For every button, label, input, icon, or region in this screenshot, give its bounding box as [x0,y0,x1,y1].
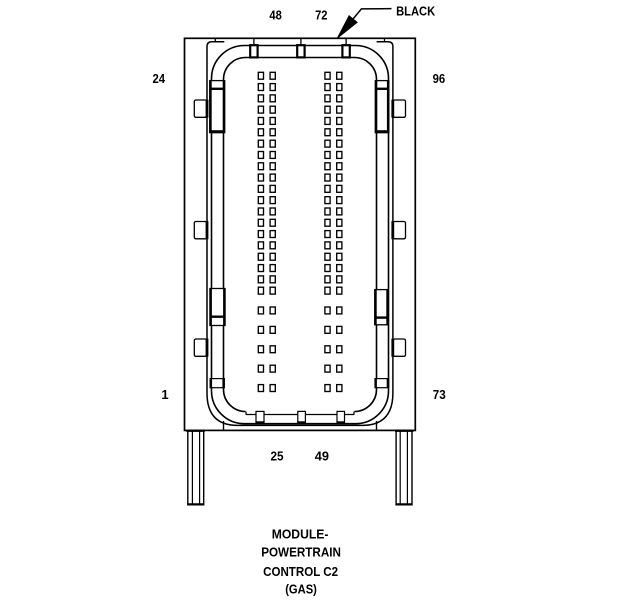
svg-text:25: 25 [271,448,284,463]
svg-text:1: 1 [161,387,168,402]
svg-text:49: 49 [315,448,329,463]
svg-text:96: 96 [433,71,446,86]
svg-text:48: 48 [269,7,281,22]
svg-text:CONTROL C2: CONTROL C2 [263,564,338,579]
svg-text:(GAS): (GAS) [285,582,317,597]
svg-text:BLACK: BLACK [396,4,435,18]
svg-text:72: 72 [315,7,327,22]
svg-text:24: 24 [153,71,166,86]
svg-text:POWERTRAIN: POWERTRAIN [261,545,341,560]
svg-text:MODULE-: MODULE- [272,526,329,541]
svg-text:73: 73 [433,387,446,402]
